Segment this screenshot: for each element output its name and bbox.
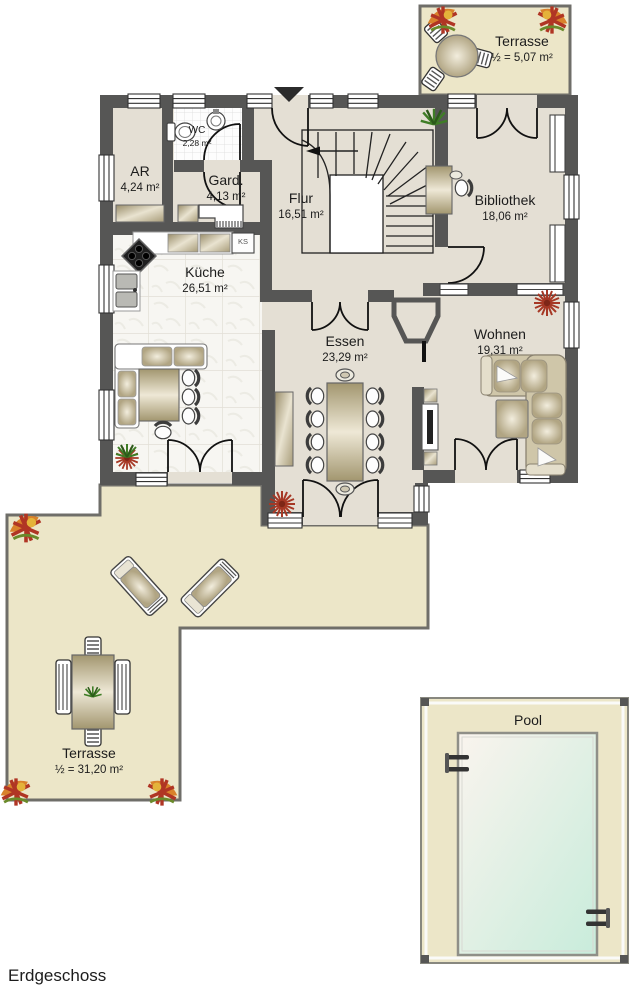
window [268, 513, 302, 528]
room-label-gard: Gard. 4,13 m² [207, 172, 246, 204]
tv-screen [427, 410, 433, 444]
room-label-flur: Flur 16,51 m² [278, 190, 323, 222]
window [348, 94, 378, 108]
room-label-ar: AR 4,24 m² [121, 163, 160, 195]
room-label-wc: WC 2,28 m² [183, 125, 212, 148]
window [564, 175, 579, 219]
label-pool: Pool [514, 712, 542, 730]
ar-sideboard [116, 205, 164, 222]
room-label-essen: Essen 23,29 m² [322, 333, 367, 365]
kitchen-sink [113, 271, 140, 311]
floor-title: Erdgeschoss [8, 966, 106, 986]
tv-unit [422, 389, 438, 465]
window [414, 486, 429, 512]
window [128, 94, 160, 108]
table-vase [336, 483, 354, 495]
window [310, 94, 333, 108]
coffee-table [496, 400, 528, 438]
essen-sideboard [275, 392, 293, 466]
window [99, 265, 114, 313]
window [448, 94, 475, 108]
fridge-label: KS [238, 237, 248, 246]
window [564, 302, 579, 348]
window [99, 155, 114, 201]
room-label-wohnen: Wohnen 19,31 m² [474, 326, 526, 358]
dining-table [327, 383, 363, 481]
floorplan-ground-floor: WC 2,28 m² AR 4,24 m² Gard. 4,13 m² Flur… [0, 0, 635, 1000]
label-terrace-top: Terrasse ½ = 5,07 m² [491, 33, 553, 65]
pool-basin [445, 733, 610, 955]
room-label-kueche: Küche 26,51 m² [182, 264, 227, 296]
window [99, 390, 114, 440]
window [378, 513, 412, 528]
window [173, 94, 205, 108]
window [247, 94, 272, 108]
desk-lamp [450, 171, 462, 179]
round-table [436, 35, 478, 77]
table-vase [336, 369, 354, 381]
floorplan-drawing [0, 0, 635, 1000]
window [136, 473, 167, 486]
room-label-bibliothek: Bibliothek 18,06 m² [475, 192, 536, 224]
gard-wardrobe [178, 205, 198, 222]
label-terrace-main: Terrasse ½ = 31,20 m² [55, 745, 123, 777]
nook-table [139, 369, 179, 421]
